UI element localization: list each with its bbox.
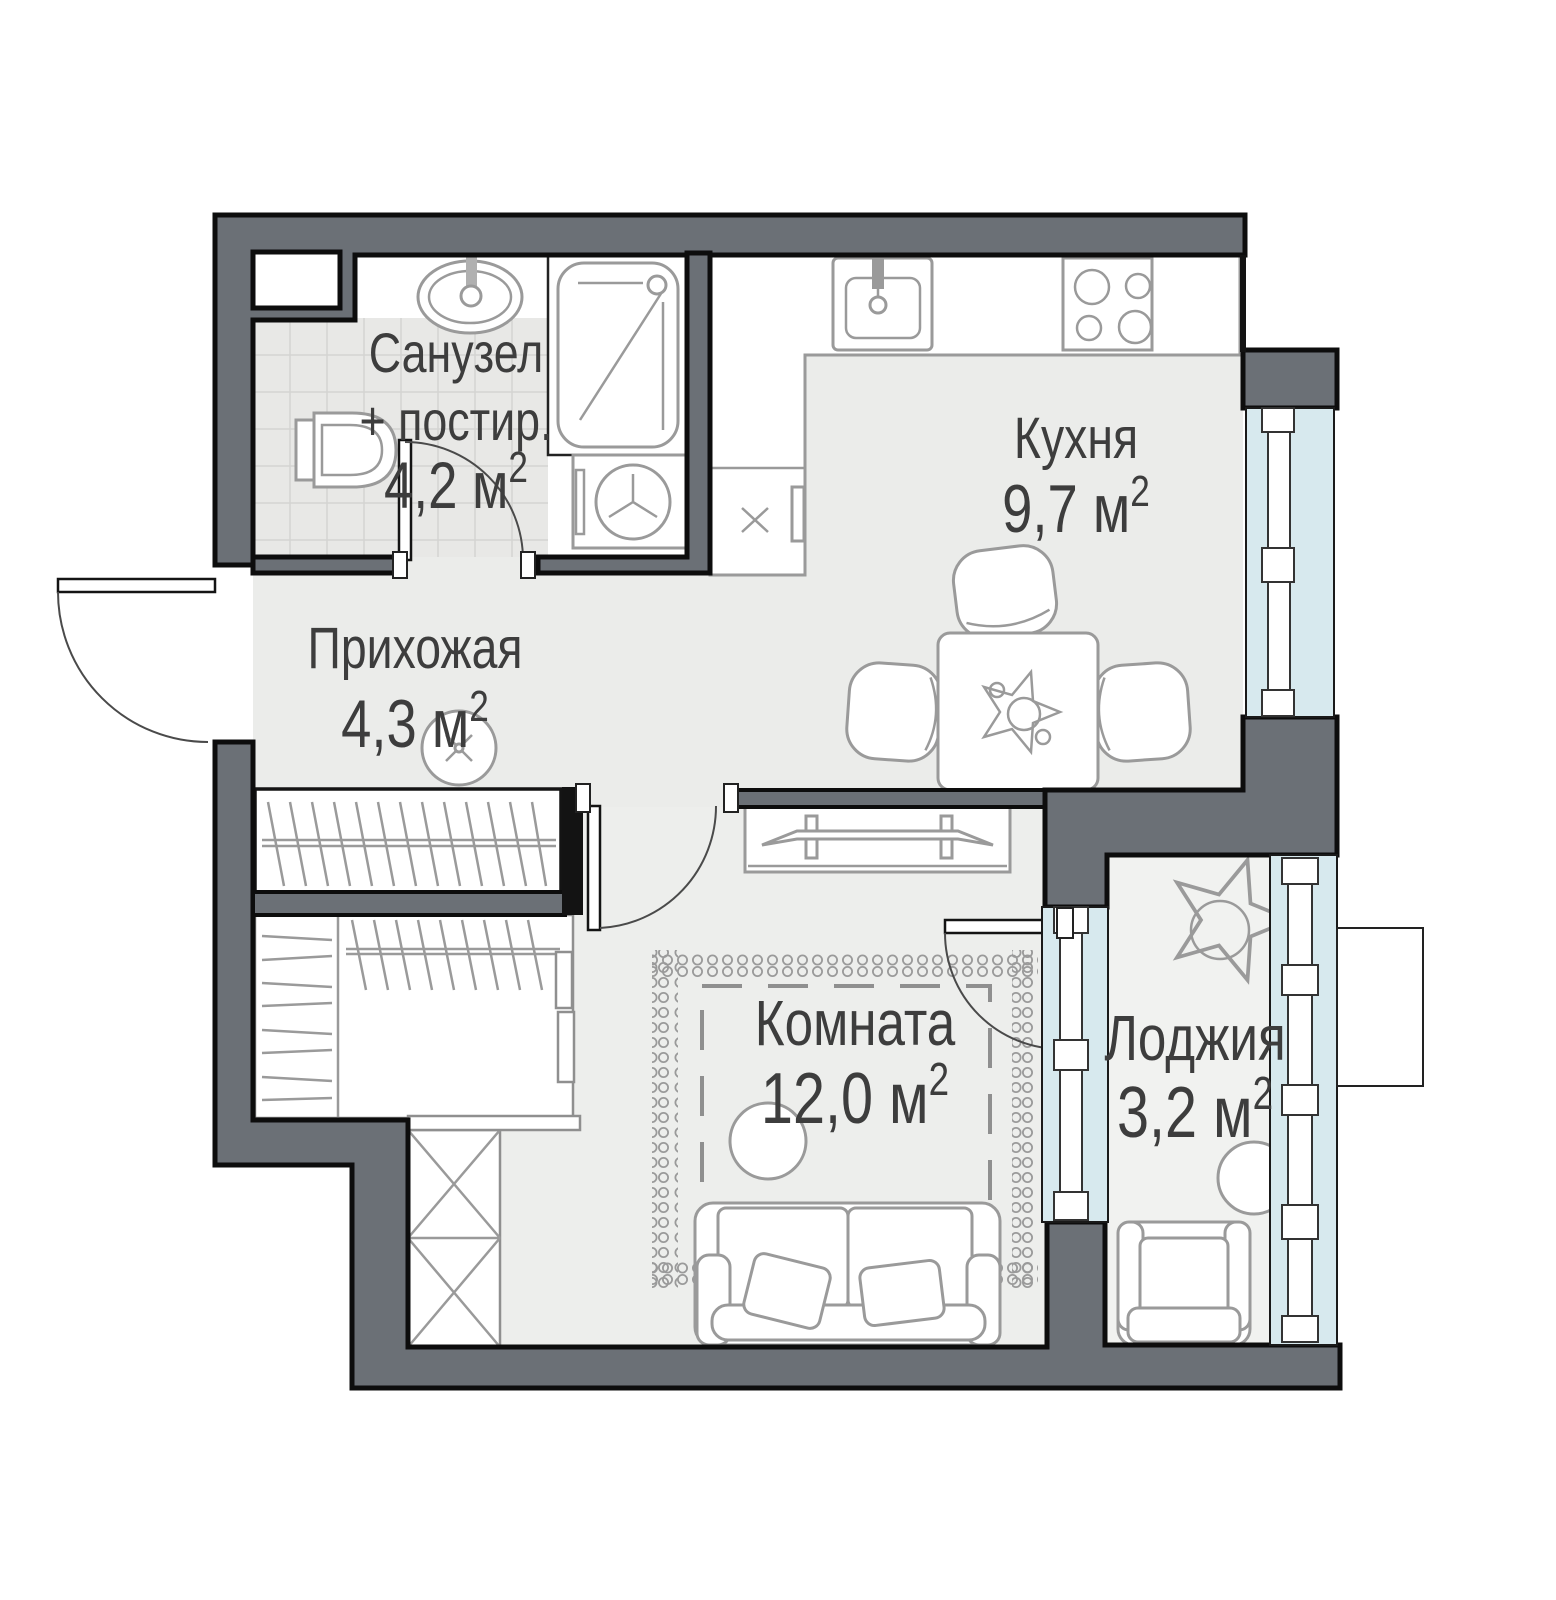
svg-text:Кухня: Кухня bbox=[1014, 406, 1138, 471]
svg-text:Комната: Комната bbox=[755, 989, 956, 1060]
seat-front bbox=[1128, 1308, 1240, 1342]
carpet-fringe-left bbox=[652, 950, 678, 1290]
loggia-name: Лоджия bbox=[1104, 1004, 1285, 1075]
cushion bbox=[1140, 1238, 1228, 1316]
stove bbox=[1063, 258, 1152, 350]
tv-console bbox=[745, 807, 1010, 872]
dining-table bbox=[938, 633, 1098, 790]
chair-left bbox=[845, 661, 943, 763]
hallway-name: Прихожая bbox=[308, 616, 523, 681]
shower bbox=[548, 253, 687, 455]
shelf-ledge bbox=[408, 1116, 580, 1130]
wall-kitchen-room-partition bbox=[733, 790, 1045, 807]
kitchen-sink bbox=[833, 255, 932, 350]
bathroom-area: 4,2 м2 bbox=[384, 443, 528, 522]
loggia-window bbox=[1270, 855, 1337, 1345]
svg-text:Санузел: Санузел bbox=[369, 321, 543, 384]
wall-closet-band bbox=[253, 892, 565, 915]
sofa bbox=[695, 1203, 1000, 1345]
loggia-area: 3,2 м2 bbox=[1117, 1067, 1273, 1152]
living-room-area: 12,0 м2 bbox=[761, 1053, 949, 1138]
label-living-room: Комната 12,0 м2 bbox=[755, 989, 956, 1139]
hall-wardrobe-lower bbox=[255, 915, 574, 1118]
hall-wardrobe-upper bbox=[255, 789, 561, 893]
armchair bbox=[1118, 1222, 1250, 1345]
svg-text:Прихожая: Прихожая bbox=[308, 616, 523, 681]
kitchen-window bbox=[1246, 408, 1334, 717]
label-kitchen: Кухня 9,7 м2 bbox=[1002, 406, 1150, 547]
svg-text:Лоджия: Лоджия bbox=[1104, 1004, 1285, 1075]
faucet-icon bbox=[872, 255, 884, 289]
pillow bbox=[859, 1259, 945, 1326]
hallway-area: 4,3 м2 bbox=[341, 682, 489, 762]
carpet-fringe-top bbox=[652, 950, 1038, 978]
carpet-fringe-right bbox=[1012, 950, 1038, 1290]
chair-top bbox=[950, 542, 1060, 642]
living-room-name: Комната bbox=[755, 989, 956, 1060]
bathroom-name-line1: Санузел bbox=[369, 321, 543, 384]
cabinet-handle bbox=[792, 487, 804, 541]
wall-kitchen-right-edge bbox=[1240, 255, 1246, 352]
shower-head-icon bbox=[648, 276, 666, 294]
chair-right bbox=[1092, 661, 1192, 763]
kitchen-area: 9,7 м2 bbox=[1002, 467, 1150, 547]
kitchen-name: Кухня bbox=[1014, 406, 1138, 471]
wall-pilaster-top-right bbox=[1243, 350, 1337, 408]
floor-plan: Санузел + постир. 4,2 м2 Кухня 9,7 м2 Пр… bbox=[0, 0, 1556, 1600]
ac-basket bbox=[1337, 928, 1423, 1086]
room-loggia-glazing bbox=[1042, 907, 1108, 1222]
wall-bathroom-bottom bbox=[253, 557, 405, 573]
washing-machine bbox=[573, 455, 687, 548]
floor-plan-svg: Санузел + постир. 4,2 м2 Кухня 9,7 м2 Пр… bbox=[0, 0, 1556, 1600]
entrance-door bbox=[58, 579, 215, 742]
